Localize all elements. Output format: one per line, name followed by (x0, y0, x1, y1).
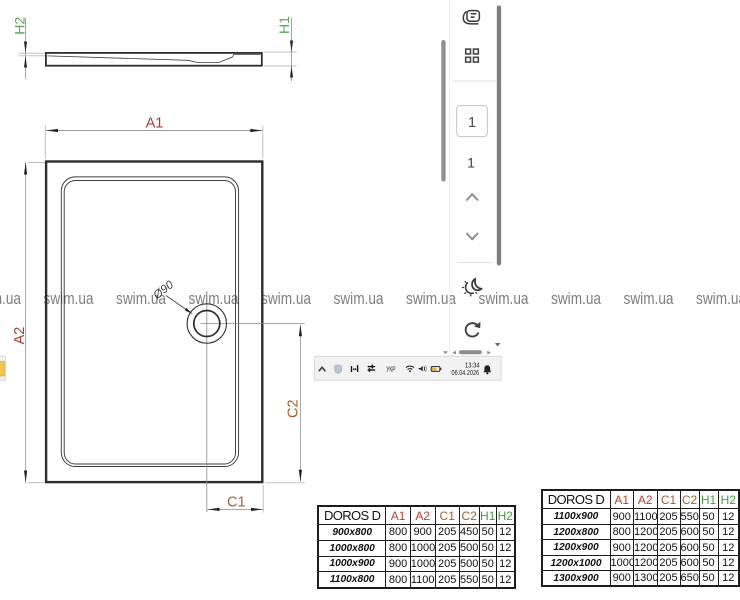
svg-text:УКР: УКР (386, 367, 395, 374)
svg-text:swim.ua: swim.ua (0, 290, 22, 308)
svg-text:C2: C2 (285, 399, 301, 418)
svg-text:H2: H2 (12, 17, 28, 35)
svg-text:13:34: 13:34 (465, 363, 480, 370)
svg-text:1: 1 (467, 155, 475, 171)
svg-text:A2: A2 (12, 327, 28, 345)
svg-text:swim.ua: swim.ua (479, 290, 530, 308)
svg-text:swim.ua: swim.ua (261, 290, 312, 308)
svg-text:06.04.2026: 06.04.2026 (452, 370, 480, 377)
svg-text:swim.ua: swim.ua (334, 290, 385, 308)
svg-text:1: 1 (468, 114, 476, 131)
svg-text:A1: A1 (146, 115, 164, 131)
svg-text:swim.ua: swim.ua (624, 290, 675, 308)
svg-text:C1: C1 (227, 494, 246, 510)
svg-text:swim.ua: swim.ua (551, 290, 602, 308)
svg-text:swim.ua: swim.ua (696, 290, 740, 308)
svg-text:swim.ua: swim.ua (44, 290, 95, 308)
svg-text:H1: H1 (276, 16, 292, 34)
